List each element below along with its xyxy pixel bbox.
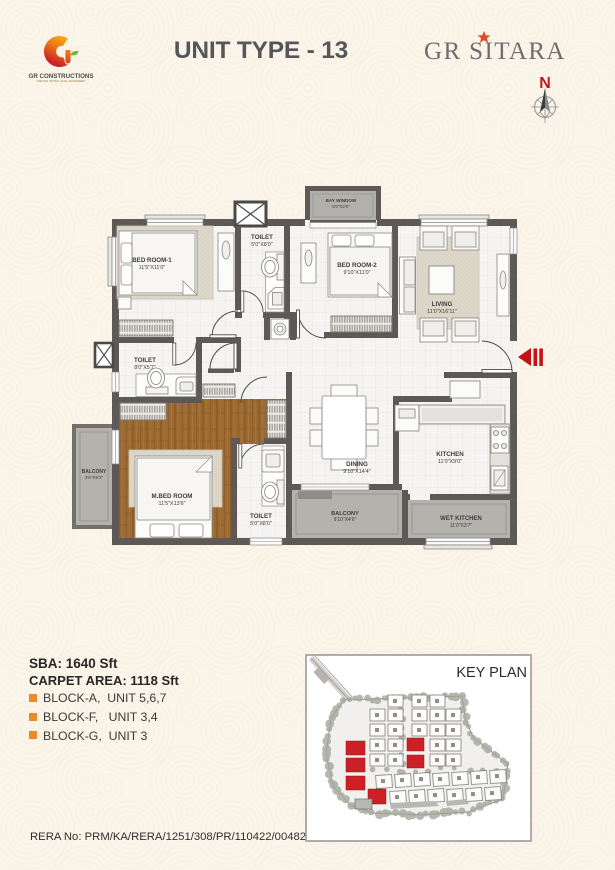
svg-text:KEY PLAN: KEY PLAN <box>456 665 527 681</box>
